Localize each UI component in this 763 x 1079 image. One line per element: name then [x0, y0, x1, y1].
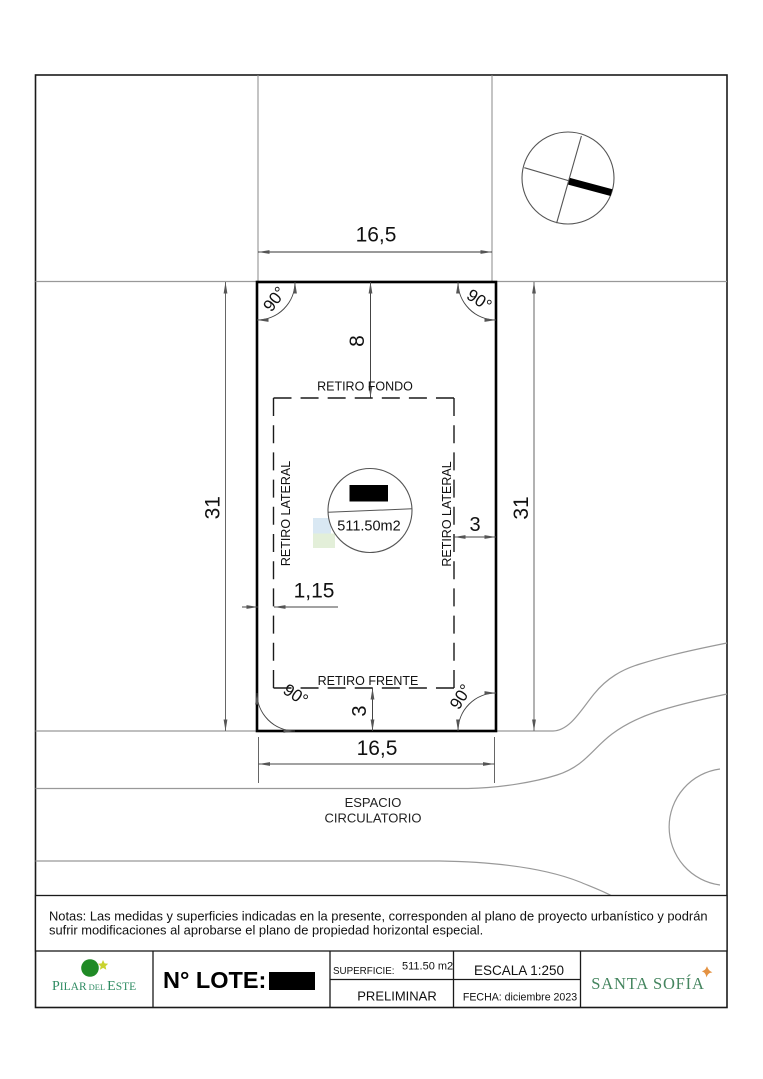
svg-text:CIRCULATORIO: CIRCULATORIO: [324, 811, 421, 826]
svg-text:3: 3: [349, 705, 371, 716]
svg-text:31: 31: [510, 496, 533, 519]
svg-text:8: 8: [346, 335, 369, 347]
svg-text:FECHA: diciembre 2023: FECHA: diciembre 2023: [463, 992, 577, 1004]
svg-text:SUPERFICIE:: SUPERFICIE:: [333, 966, 395, 977]
svg-text:511.50m2: 511.50m2: [337, 519, 400, 535]
svg-text:511.50 m2: 511.50 m2: [402, 961, 453, 973]
svg-text:16,5: 16,5: [356, 224, 397, 247]
svg-text:PILARDELESTE: PILARDELESTE: [52, 979, 136, 994]
svg-text:PRELIMINAR: PRELIMINAR: [357, 989, 436, 1004]
svg-text:RETIRO FRENTE: RETIRO FRENTE: [318, 674, 419, 688]
svg-text:Notas: Las medidas y superfici: Notas: Las medidas y superficies indicad…: [49, 909, 708, 924]
svg-text:16,5: 16,5: [357, 737, 398, 760]
svg-text:RETIRO LATERAL: RETIRO LATERAL: [440, 461, 454, 566]
svg-text:N° LOTE:: N° LOTE:: [163, 967, 266, 993]
svg-text:3: 3: [469, 514, 480, 536]
svg-text:RETIRO LATERAL: RETIRO LATERAL: [279, 461, 293, 566]
svg-text:RETIRO FONDO: RETIRO FONDO: [317, 380, 413, 394]
svg-text:31: 31: [202, 496, 225, 519]
svg-text:1,15: 1,15: [294, 580, 335, 603]
svg-text:ESCALA 1:250: ESCALA 1:250: [474, 963, 564, 978]
svg-text:sufrir modificaciones al aprob: sufrir modificaciones al aprobarse el pl…: [49, 923, 483, 938]
svg-text:SANTA SOFÍA: SANTA SOFÍA: [591, 974, 704, 993]
svg-text:ESPACIO: ESPACIO: [345, 795, 402, 810]
